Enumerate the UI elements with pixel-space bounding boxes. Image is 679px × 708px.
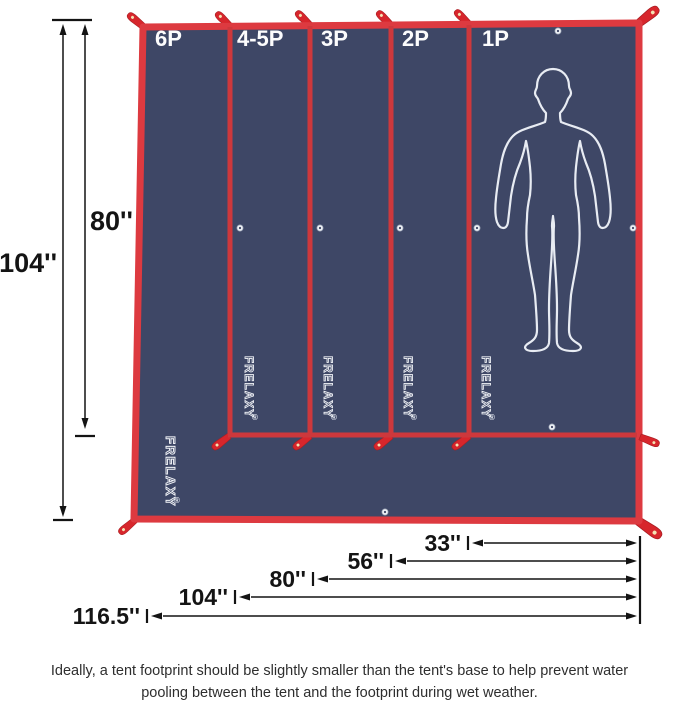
registered-mark: ® bbox=[411, 413, 417, 422]
height-dimension-label: 104'' bbox=[0, 248, 57, 278]
grommet bbox=[317, 225, 323, 231]
panel-label-1p: 1P bbox=[482, 26, 509, 51]
brand-logo: FRELAXY bbox=[479, 356, 491, 418]
grommet bbox=[397, 225, 403, 231]
registered-mark: ® bbox=[252, 413, 258, 422]
brand-logo: FRELAXY bbox=[242, 356, 254, 418]
brand-logo: FRELAXY bbox=[321, 356, 333, 418]
width-dimension-label: 56'' bbox=[347, 548, 384, 574]
height-dimensions: 104'' 80'' bbox=[0, 20, 133, 520]
width-dimension-label: 116.5'' bbox=[73, 603, 140, 629]
caption-line-2: pooling between the tent and the footpri… bbox=[0, 682, 679, 704]
registered-mark: ® bbox=[489, 413, 495, 422]
panel-label-6p: 6P bbox=[155, 26, 182, 51]
tent-footprint-size-diagram: 6P 4-5P 3P 2P 1P FRELAXY ® FRELAXY ® FRE… bbox=[0, 0, 679, 708]
grommet bbox=[382, 509, 388, 515]
tarp bbox=[134, 23, 639, 521]
grommet bbox=[237, 225, 243, 231]
brand-logo: FRELAXY bbox=[401, 356, 413, 418]
caption: Ideally, a tent footprint should be slig… bbox=[0, 660, 679, 704]
grommet bbox=[630, 225, 636, 231]
caption-line-1: Ideally, a tent footprint should be slig… bbox=[0, 660, 679, 682]
width-dimensions: 33'' 56'' 80'' 104'' 116.5'' bbox=[73, 530, 640, 629]
panel-label-45p: 4-5P bbox=[237, 26, 283, 51]
panel-label-3p: 3P bbox=[321, 26, 348, 51]
grommet bbox=[555, 28, 561, 34]
width-dimension-label: 33'' bbox=[424, 530, 461, 556]
panel-label-2p: 2P bbox=[402, 26, 429, 51]
tent-footprint-figure: 6P 4-5P 3P 2P 1P FRELAXY ® FRELAXY ® FRE… bbox=[0, 0, 679, 650]
height-dimension-label: 80'' bbox=[90, 206, 133, 236]
registered-mark: ® bbox=[331, 413, 337, 422]
registered-mark: ® bbox=[174, 496, 180, 505]
width-dimension-label: 80'' bbox=[269, 566, 306, 592]
width-dimension-label: 104'' bbox=[179, 584, 228, 610]
grommet bbox=[474, 225, 480, 231]
grommet bbox=[549, 424, 555, 430]
